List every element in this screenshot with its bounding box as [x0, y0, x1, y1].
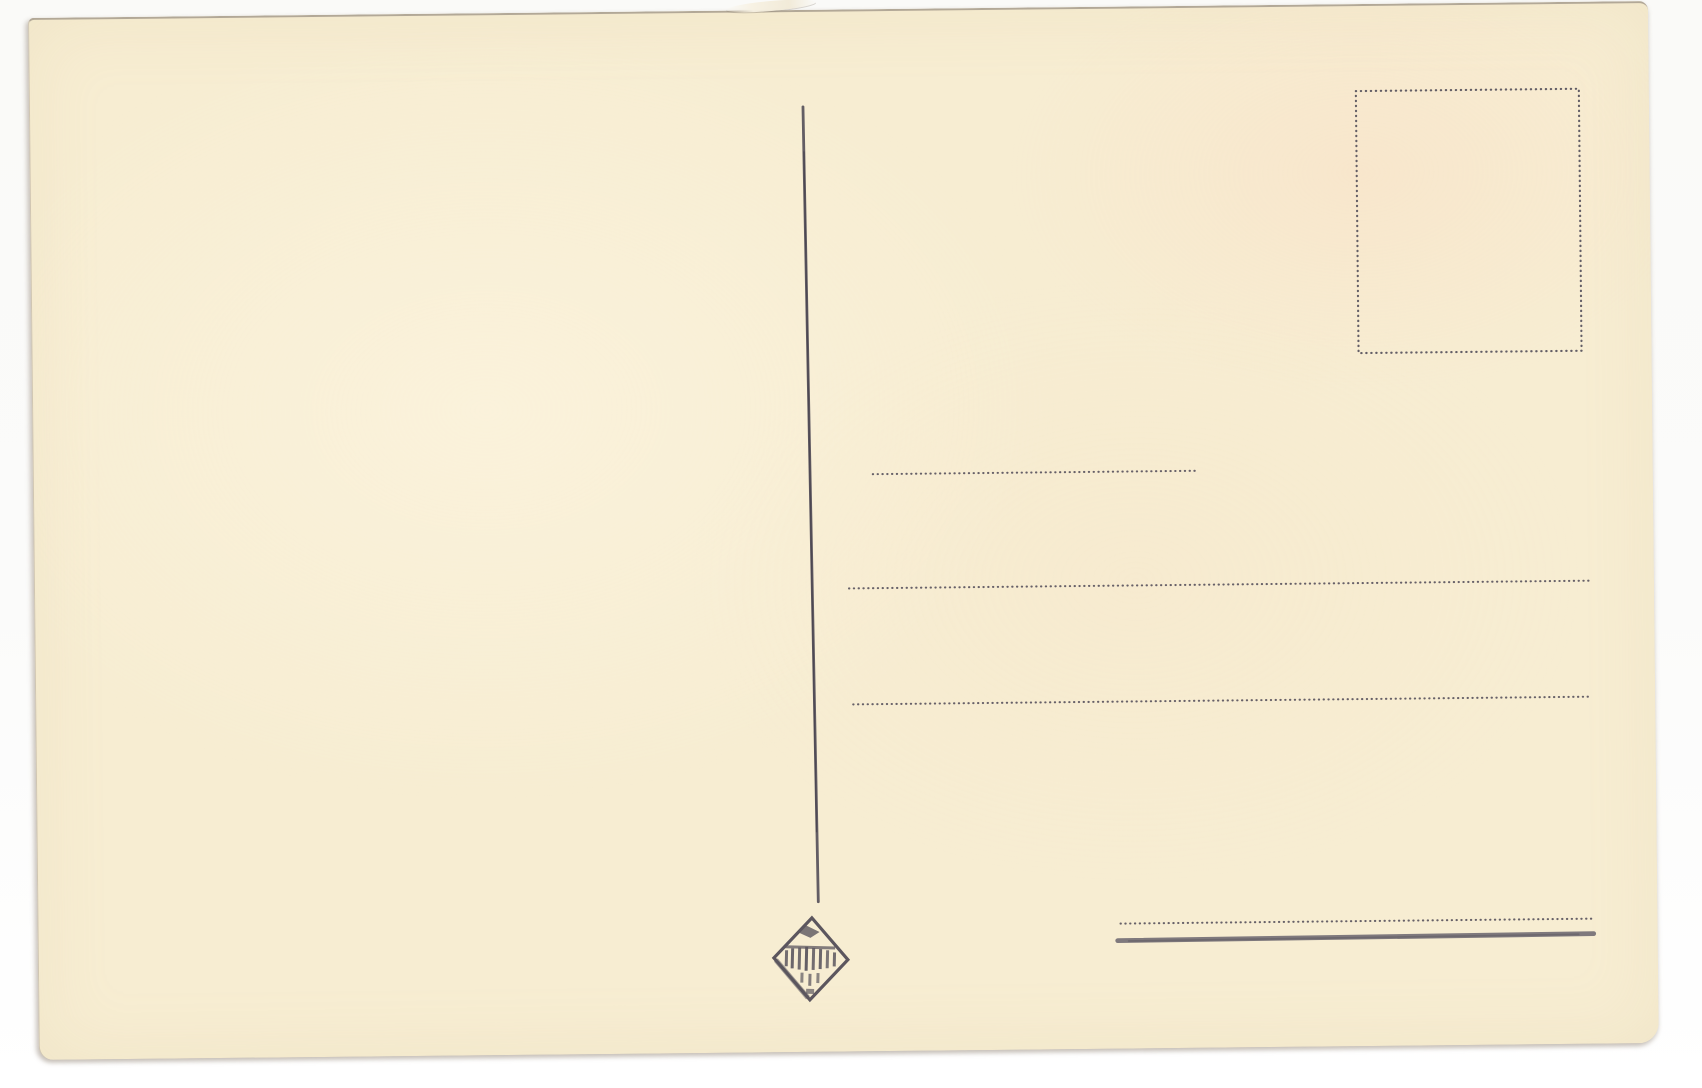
bottom-rule — [1118, 934, 1594, 941]
address-line-1 — [873, 471, 1196, 474]
address-line-2 — [849, 581, 1591, 589]
diamond-publisher-mark-icon — [773, 917, 849, 1001]
scanner-background: Scanned back of a blank vintage postcard… — [0, 0, 1702, 1088]
postcard-back — [28, 1, 1659, 1060]
printed-ink-layer — [29, 3, 1660, 1062]
divider-line — [803, 107, 818, 902]
stamp-box — [1356, 89, 1582, 353]
postcard-description: Scanned back of a blank vintage postcard… — [0, 0, 1, 1]
address-line-4 — [1121, 919, 1595, 924]
address-line-3 — [853, 697, 1591, 705]
